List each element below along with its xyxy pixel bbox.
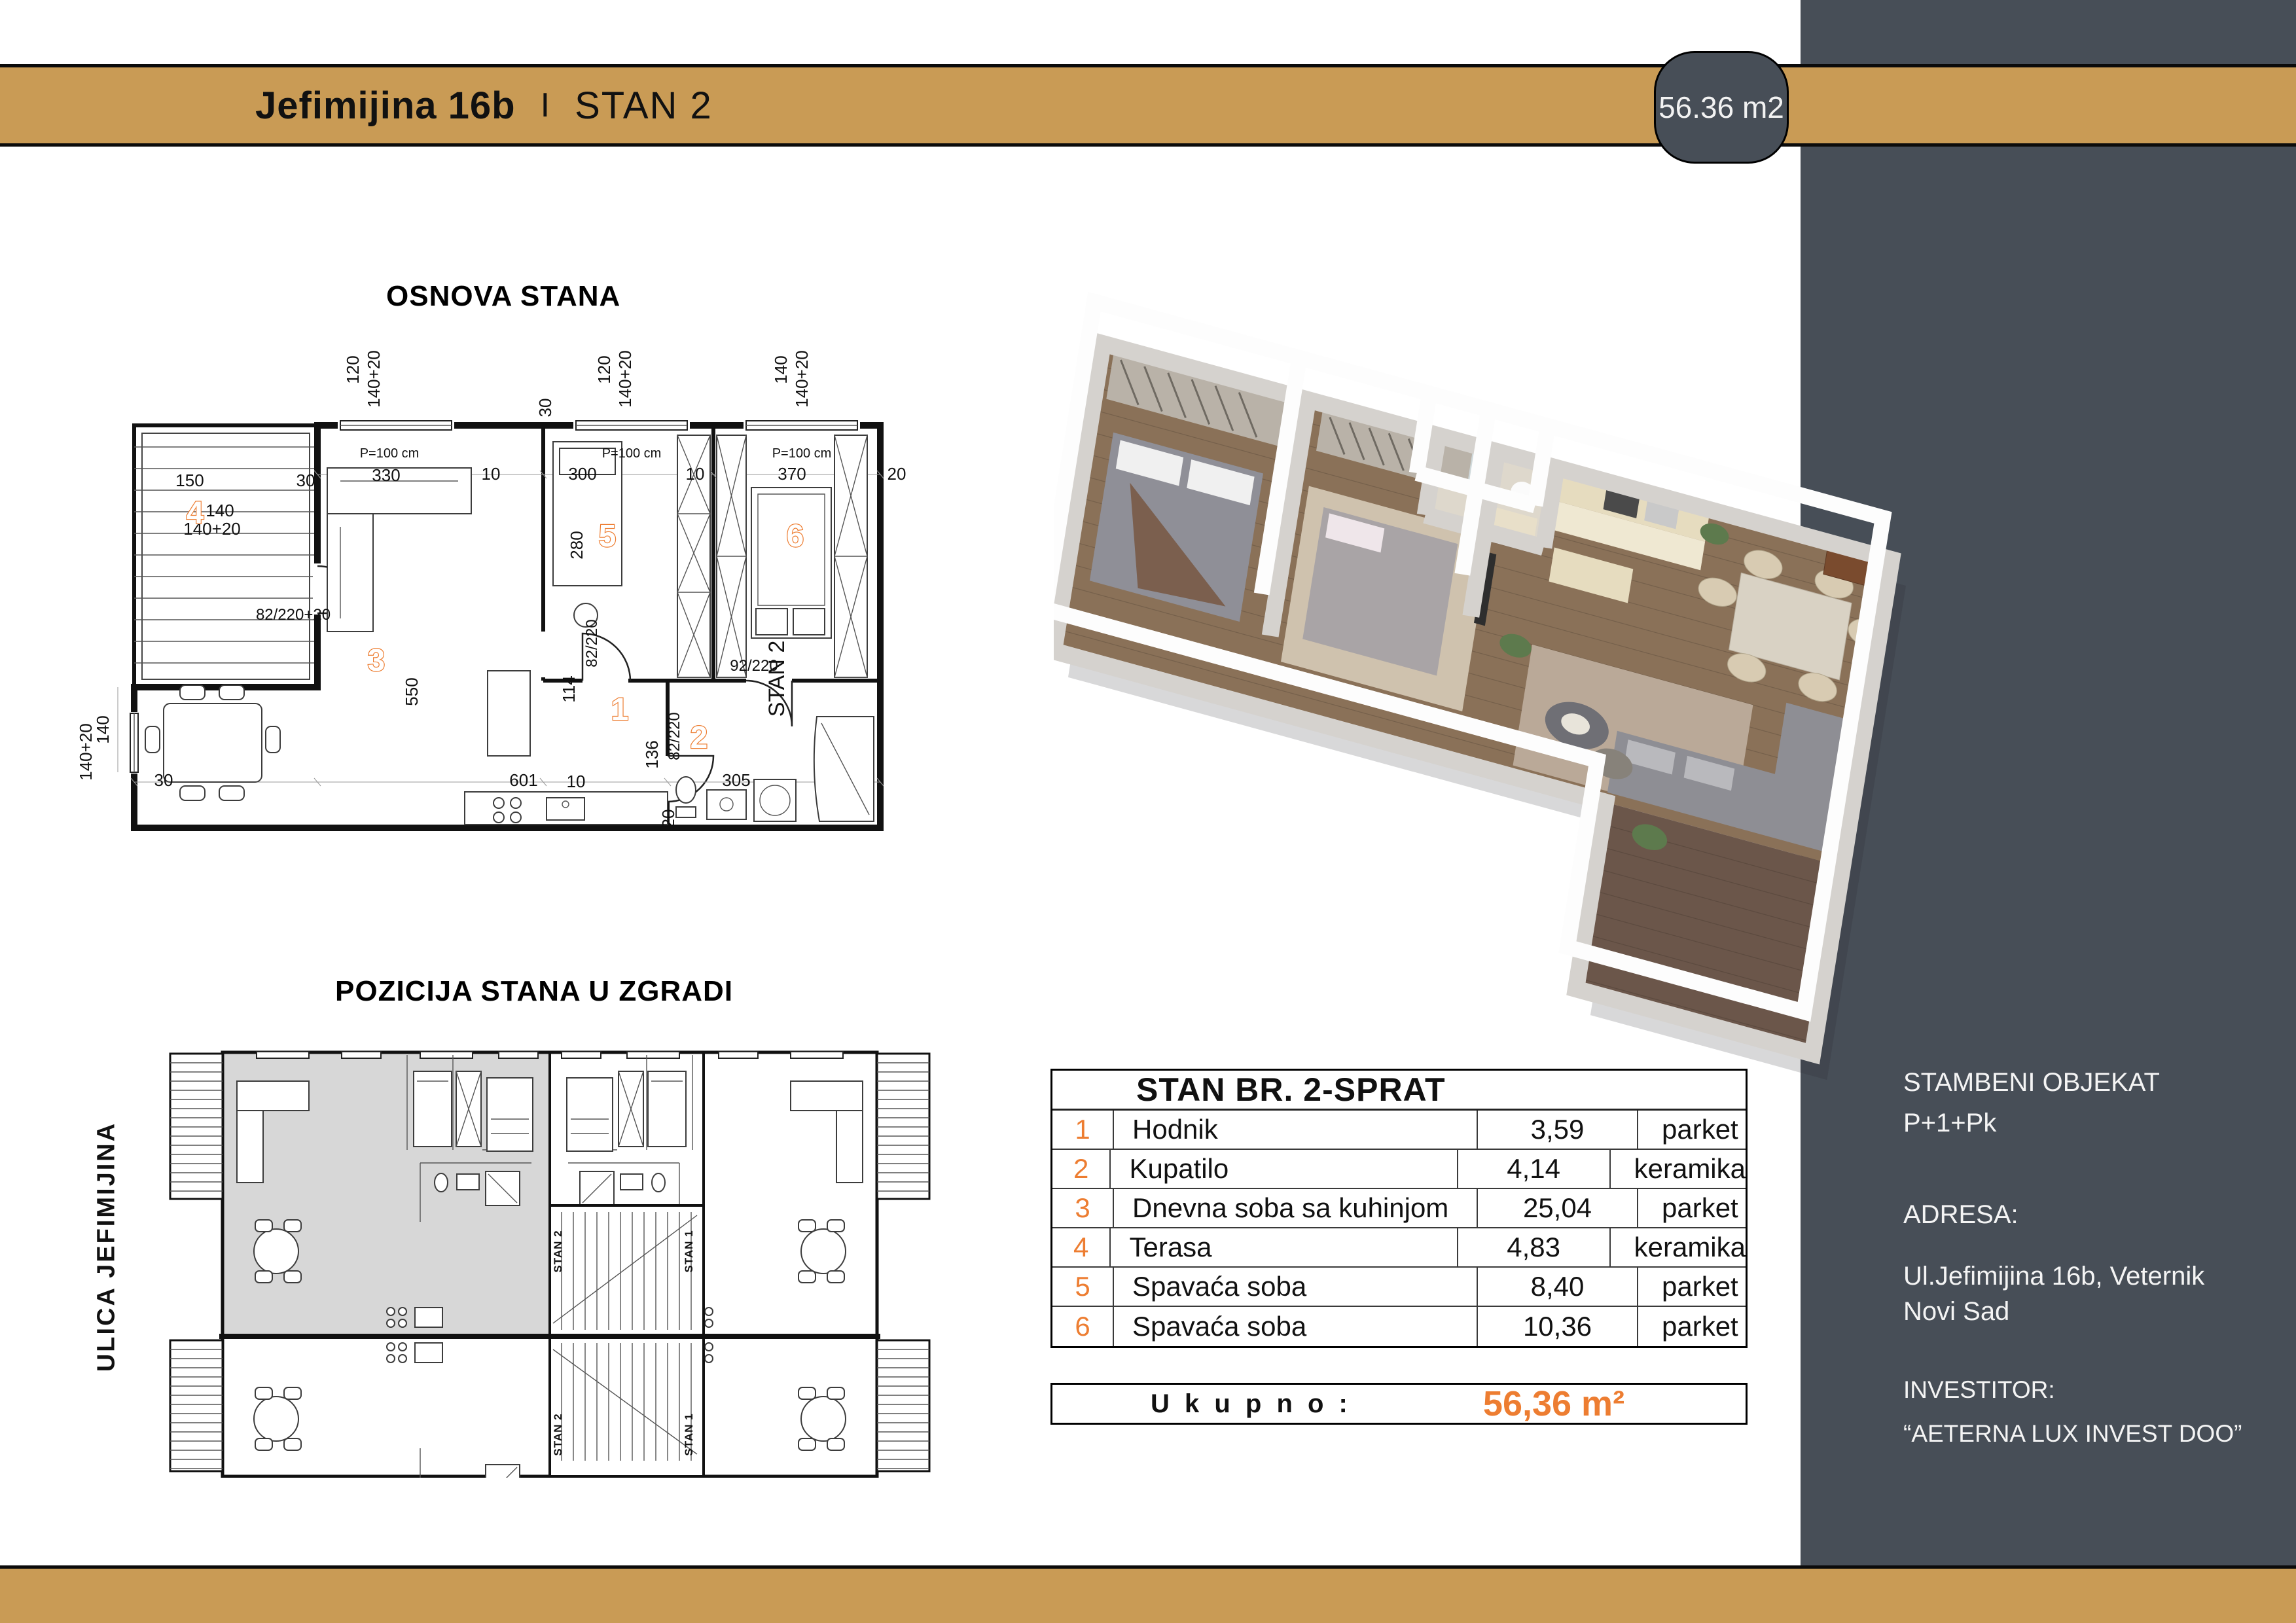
svg-text:140+20: 140+20 bbox=[364, 350, 384, 407]
svg-text:20: 20 bbox=[888, 464, 906, 484]
row-area: 4,14 bbox=[1458, 1150, 1611, 1188]
table-row: 4 Terasa 4,83 keramika bbox=[1052, 1228, 1746, 1268]
row-flooring: parket bbox=[1638, 1189, 1746, 1227]
row-room-name: Dnevna soba sa kuhinjom bbox=[1114, 1189, 1478, 1227]
total-label: U k u p n o : bbox=[1151, 1389, 1352, 1419]
row-room-name: Terasa bbox=[1111, 1228, 1458, 1266]
row-room-name: Spavaća soba bbox=[1114, 1268, 1478, 1306]
building-type: STAMBENI OBJEKAT bbox=[1903, 1068, 2270, 1097]
floor-plan-section-title: OSNOVA STANA bbox=[386, 280, 620, 313]
svg-text:STAN 1: STAN 1 bbox=[683, 1230, 695, 1272]
svg-text:305: 305 bbox=[722, 770, 750, 790]
svg-text:140+20: 140+20 bbox=[615, 350, 635, 407]
svg-text:30: 30 bbox=[154, 770, 173, 790]
svg-text:140: 140 bbox=[206, 501, 234, 520]
bottom-gold-bar bbox=[0, 1565, 2296, 1623]
stairwell bbox=[550, 1205, 704, 1476]
area-badge: 56.36 m2 bbox=[1654, 51, 1789, 164]
total-value: 56,36 m² bbox=[1416, 1383, 1691, 1424]
row-flooring: keramika bbox=[1611, 1150, 1746, 1188]
svg-text:10: 10 bbox=[567, 772, 586, 791]
page: Jefimijina 16b I STAN 2 56.36 m2 OSNOVA … bbox=[0, 0, 2296, 1623]
svg-text:601: 601 bbox=[509, 770, 537, 790]
row-number: 1 bbox=[1052, 1111, 1114, 1149]
row-number: 4 bbox=[1052, 1228, 1111, 1266]
row-flooring: parket bbox=[1638, 1268, 1746, 1306]
svg-text:3: 3 bbox=[368, 643, 386, 678]
svg-text:136: 136 bbox=[642, 740, 662, 768]
header-title-separator: I bbox=[541, 86, 550, 125]
address-label: ADRESA: bbox=[1903, 1200, 2270, 1229]
row-area: 4,83 bbox=[1458, 1228, 1611, 1266]
svg-text:10: 10 bbox=[482, 464, 501, 484]
header-title-unit: STAN 2 bbox=[575, 84, 713, 128]
svg-text:STAN 1: STAN 1 bbox=[683, 1413, 695, 1455]
row-number: 6 bbox=[1052, 1307, 1114, 1346]
svg-text:4: 4 bbox=[187, 496, 204, 531]
svg-text:STAN 2: STAN 2 bbox=[552, 1413, 564, 1455]
svg-text:114: 114 bbox=[559, 675, 579, 702]
table-row: 6 Spavaća soba 10,36 parket bbox=[1052, 1307, 1746, 1346]
table-row: 1 Hodnik 3,59 parket bbox=[1052, 1111, 1746, 1150]
address-line2: Novi Sad bbox=[1903, 1297, 2270, 1326]
svg-text:140: 140 bbox=[771, 355, 791, 383]
svg-text:370: 370 bbox=[778, 464, 806, 484]
svg-text:120: 120 bbox=[594, 355, 614, 383]
investor-label: INVESTITOR: bbox=[1903, 1377, 2270, 1404]
svg-text:P=100 cm: P=100 cm bbox=[772, 446, 832, 461]
row-room-name: Hodnik bbox=[1114, 1111, 1478, 1149]
table-row: 3 Dnevna soba sa kuhinjom 25,04 parket bbox=[1052, 1189, 1746, 1228]
svg-text:P=100 cm: P=100 cm bbox=[360, 446, 420, 461]
position-section-title: POZICIJA STANA U ZGRADI bbox=[335, 975, 733, 1008]
svg-text:330: 330 bbox=[372, 465, 400, 485]
svg-text:STAN 2: STAN 2 bbox=[764, 641, 789, 717]
row-area: 3,59 bbox=[1478, 1111, 1638, 1149]
row-area: 25,04 bbox=[1478, 1189, 1638, 1227]
building-position-drawing: STAN 2STAN 1STAN 2STAN 1 bbox=[72, 1048, 1028, 1480]
investor-name: “AETERNA LUX INVEST DOO” bbox=[1903, 1421, 2270, 1448]
svg-text:140: 140 bbox=[93, 715, 113, 743]
svg-text:30: 30 bbox=[296, 471, 315, 490]
row-number: 2 bbox=[1052, 1150, 1111, 1188]
floor-plan-drawing: 150140140+2030330103001037020120140+2012… bbox=[79, 324, 956, 847]
table-row: 2 Kupatilo 4,14 keramika bbox=[1052, 1150, 1746, 1189]
header-title: Jefimijina 16b I STAN 2 bbox=[255, 64, 713, 147]
svg-text:140+20: 140+20 bbox=[79, 723, 96, 780]
row-flooring: keramika bbox=[1611, 1228, 1746, 1266]
svg-text:280: 280 bbox=[567, 531, 586, 559]
svg-text:82/220: 82/220 bbox=[666, 712, 683, 760]
building-floors: P+1+Pk bbox=[1903, 1109, 2270, 1137]
svg-text:STAN 2: STAN 2 bbox=[552, 1230, 564, 1272]
svg-text:20: 20 bbox=[658, 810, 678, 829]
room-table: STAN BR. 2-SPRAT 1 Hodnik 3,59 parket 2 … bbox=[1050, 1069, 1748, 1348]
row-number: 3 bbox=[1052, 1189, 1114, 1227]
address-line1: Ul.Jefimijina 16b, Veternik bbox=[1903, 1262, 2270, 1291]
total-row: U k u p n o : 56,36 m² bbox=[1050, 1383, 1748, 1425]
table-row: 5 Spavaća soba 8,40 parket bbox=[1052, 1268, 1746, 1307]
svg-text:300: 300 bbox=[568, 464, 596, 484]
svg-text:150: 150 bbox=[175, 471, 204, 490]
row-area: 8,40 bbox=[1478, 1268, 1638, 1306]
svg-text:P=100 cm: P=100 cm bbox=[602, 446, 662, 461]
svg-text:140+20: 140+20 bbox=[792, 350, 812, 407]
svg-text:2: 2 bbox=[691, 721, 708, 755]
apartment-3d-render bbox=[1054, 226, 1983, 1096]
row-flooring: parket bbox=[1638, 1111, 1746, 1149]
project-info: STAMBENI OBJEKAT P+1+Pk ADRESA: Ul.Jefim… bbox=[1903, 1068, 2270, 1447]
svg-text:550: 550 bbox=[402, 677, 422, 705]
header-title-address: Jefimijina 16b bbox=[255, 84, 516, 128]
svg-text:82/220: 82/220 bbox=[583, 619, 601, 667]
svg-text:30: 30 bbox=[535, 399, 555, 418]
row-room-name: Spavaća soba bbox=[1114, 1307, 1478, 1346]
row-number: 5 bbox=[1052, 1268, 1114, 1306]
terrace-stairs bbox=[134, 425, 317, 687]
svg-text:1: 1 bbox=[611, 692, 629, 727]
svg-text:5: 5 bbox=[599, 519, 617, 554]
row-room-name: Kupatilo bbox=[1111, 1150, 1458, 1188]
svg-text:6: 6 bbox=[787, 519, 804, 554]
row-flooring: parket bbox=[1638, 1307, 1746, 1346]
svg-text:82/220+20: 82/220+20 bbox=[256, 606, 331, 624]
svg-text:120: 120 bbox=[343, 355, 363, 383]
svg-text:10: 10 bbox=[686, 464, 705, 484]
row-area: 10,36 bbox=[1478, 1307, 1638, 1346]
